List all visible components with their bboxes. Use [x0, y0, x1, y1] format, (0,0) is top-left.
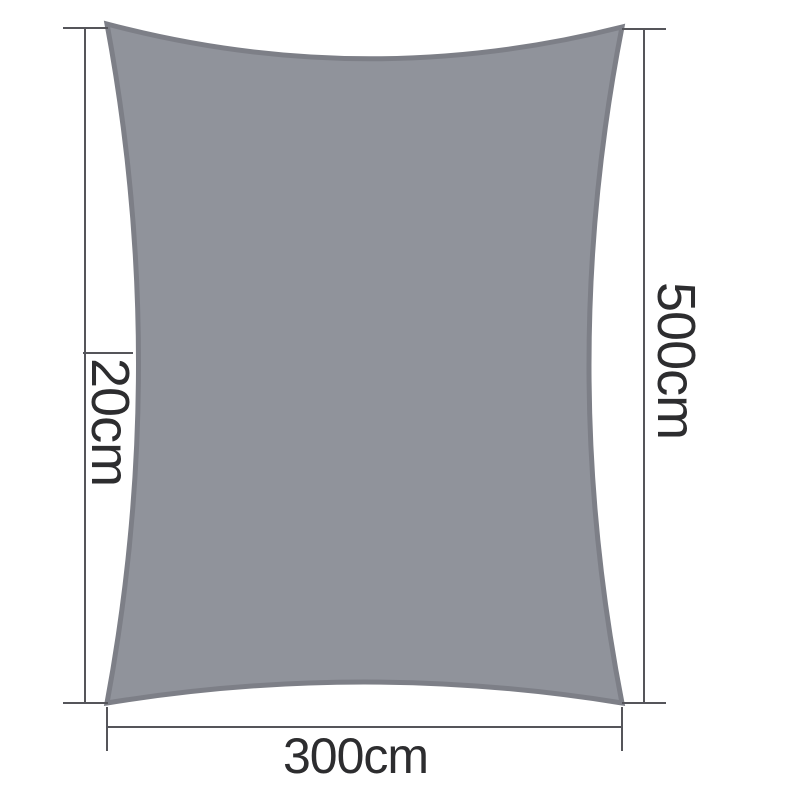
right-dimension-line [643, 29, 645, 704]
width-label: 300cm [283, 728, 428, 784]
bottom-dimension-left-tick [106, 707, 108, 751]
shade-sail-dimension-diagram: 20cm 500cm 300cm [0, 0, 800, 800]
left-dimension-top-tick [63, 27, 108, 29]
right-dimension-bottom-tick [622, 702, 666, 704]
curve-depth-tick [83, 352, 133, 354]
shade-sail-shape-path [107, 24, 622, 703]
right-dimension-top-tick [622, 28, 666, 30]
curve-depth-label: 20cm [84, 358, 136, 486]
left-dimension-bottom-tick [63, 702, 108, 704]
height-label: 500cm [650, 282, 702, 439]
bottom-dimension-right-tick [621, 707, 623, 751]
